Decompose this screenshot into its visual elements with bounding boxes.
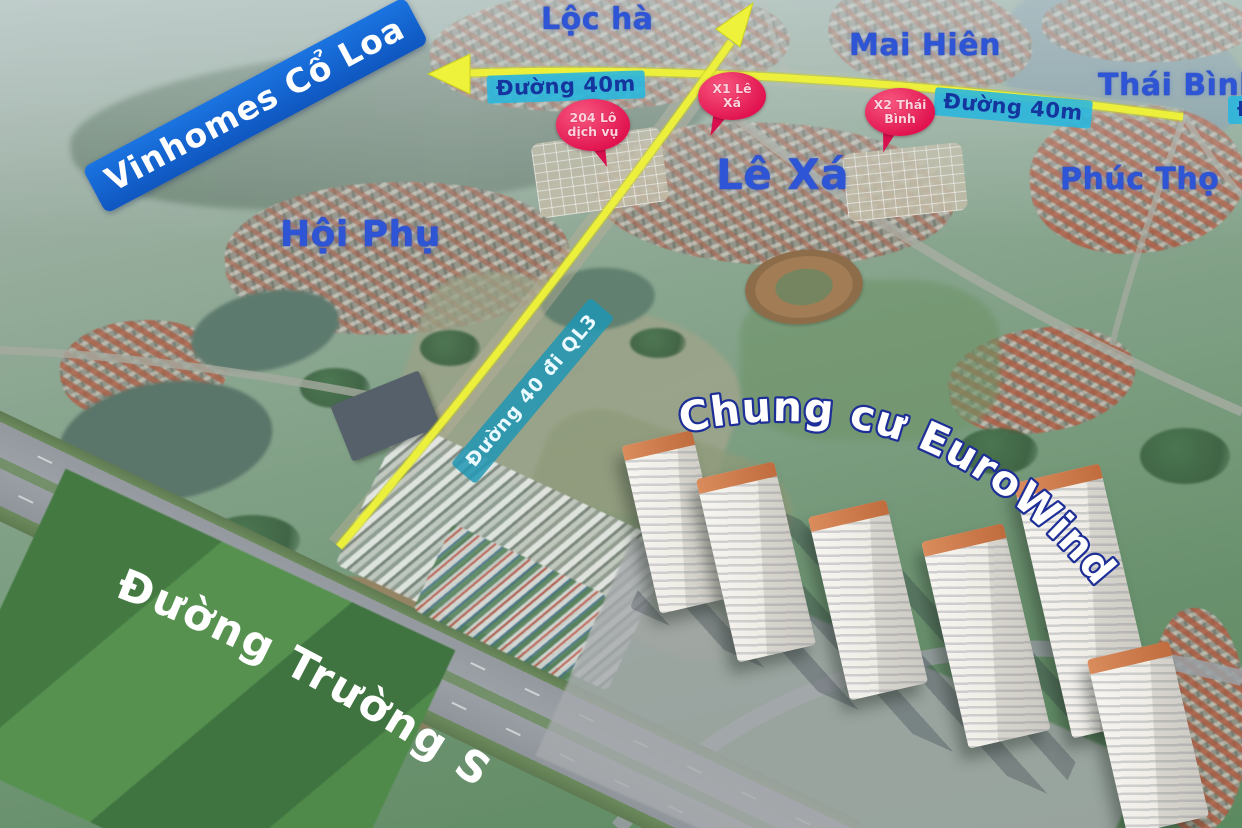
pin-text-line: Bình (884, 112, 916, 126)
pin-text-line: X1 Lê (712, 82, 751, 96)
place-label-mai-hien: Mai Hiên (849, 28, 1001, 63)
map-pin-204-lo-dich-vu: 204 Lô dịch vụ (556, 99, 630, 151)
pin-text-line: 204 Lô (570, 111, 617, 125)
place-label-loc-ha: Lộc hà (541, 2, 654, 37)
pin-bubble: X2 Thái Bình (865, 88, 935, 136)
pin-bubble: 204 Lô dịch vụ (556, 99, 630, 151)
map-pin-x1-le-xa: X1 Lê Xá (698, 72, 766, 120)
pin-text-line: dịch vụ (568, 125, 619, 139)
place-label-phuc-tho: Phúc Thọ (1060, 162, 1219, 197)
place-label-thai-binh: Thái Bình (1098, 68, 1242, 103)
pin-text-line: Xá (723, 96, 741, 110)
road-label-edge-fragment: Đ (1228, 96, 1242, 124)
place-label-hoi-phu: Hội Phụ (280, 214, 441, 255)
pin-text-line: X2 Thái (874, 98, 927, 112)
aerial-map: Vinhomes Cổ Loa Lộc hà Mai Hiên Thái Bìn… (0, 0, 1242, 828)
map-pin-x2-thai-binh: X2 Thái Bình (865, 88, 935, 136)
pin-bubble: X1 Lê Xá (698, 72, 766, 120)
place-label-le-xa: Lê Xá (716, 150, 849, 199)
